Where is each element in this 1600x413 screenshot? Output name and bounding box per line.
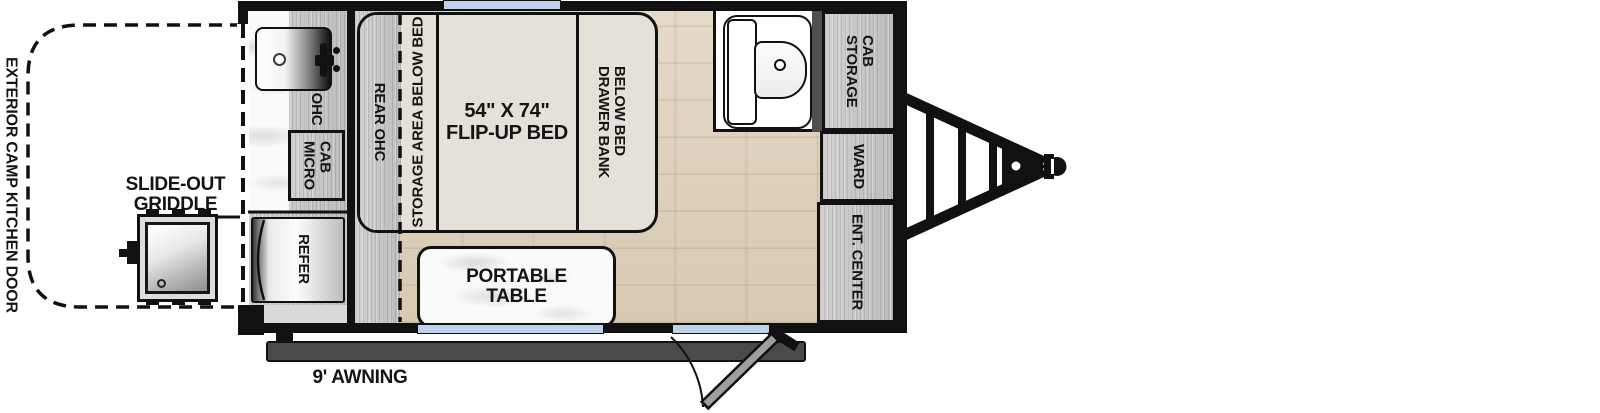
ohc-label: OHC (308, 93, 324, 126)
wardrobe: WARD (820, 131, 896, 202)
bed-platform: REAR OHC STORAGE AREA BELOW BED 54" X 74… (357, 12, 658, 233)
hitch-frame (900, 96, 1048, 237)
portable-table-label: PORTABLE TABLE (466, 267, 567, 307)
refer-label: REFER (295, 234, 311, 284)
interior-wall (347, 11, 355, 323)
portable-table: PORTABLE TABLE (417, 246, 616, 328)
sink-drain (273, 53, 286, 66)
exterior-camp-kitchen-door-text: EXTERIOR CAMP KITCHEN DOOR (2, 57, 19, 313)
drawer-bank-label: DRAWER BANK BELOW BED (595, 66, 627, 178)
micro-cab-label: MICRO CAB (300, 141, 332, 190)
exterior-camp-kitchen-door-label: EXTERIOR CAMP KITCHEN DOOR (2, 57, 19, 313)
window-bottom (417, 324, 604, 334)
storage-cab: STORAGE CAB (822, 11, 896, 131)
toilet-flush-icon (774, 59, 786, 71)
griddle-handle-knob (119, 249, 128, 257)
awning-bar (266, 341, 806, 362)
entertainment-center: ENT. CENTER (817, 202, 896, 323)
refer-platform (250, 305, 347, 323)
slide-out-griddle (137, 214, 218, 302)
faucet-knob-icon (333, 65, 340, 72)
awning-label: 9' AWNING (300, 368, 420, 388)
griddle-surface (145, 222, 210, 294)
floorplan-canvas: EXTERIOR CAMP KITCHEN DOOR SLIDE-OUT GRI… (0, 0, 1600, 413)
ent-center-label: ENT. CENTER (848, 214, 864, 310)
ward-label: WARD (850, 144, 866, 189)
flip-up-bed-label: 54" X 74" FLIP-UP BED (437, 101, 577, 144)
trailer-wall-right (896, 1, 907, 333)
micro-cab: MICRO CAB (288, 130, 345, 201)
toilet-tank (727, 19, 757, 125)
faucet-knob-icon (333, 47, 340, 54)
rear-ohc-label: REAR OHC (371, 83, 387, 161)
storage-cab-label: STORAGE CAB (843, 35, 875, 108)
griddle-knob (157, 279, 166, 288)
trailer-wall-left (238, 1, 248, 333)
entry-door-glass (672, 324, 770, 334)
faucet-spout-icon (315, 55, 334, 66)
trailer-wall-top (238, 1, 907, 11)
window-top (443, 0, 561, 10)
storage-area-below-bed-label: STORAGE AREA BELOW BED (410, 17, 427, 228)
hitch-coupler (1044, 154, 1067, 179)
